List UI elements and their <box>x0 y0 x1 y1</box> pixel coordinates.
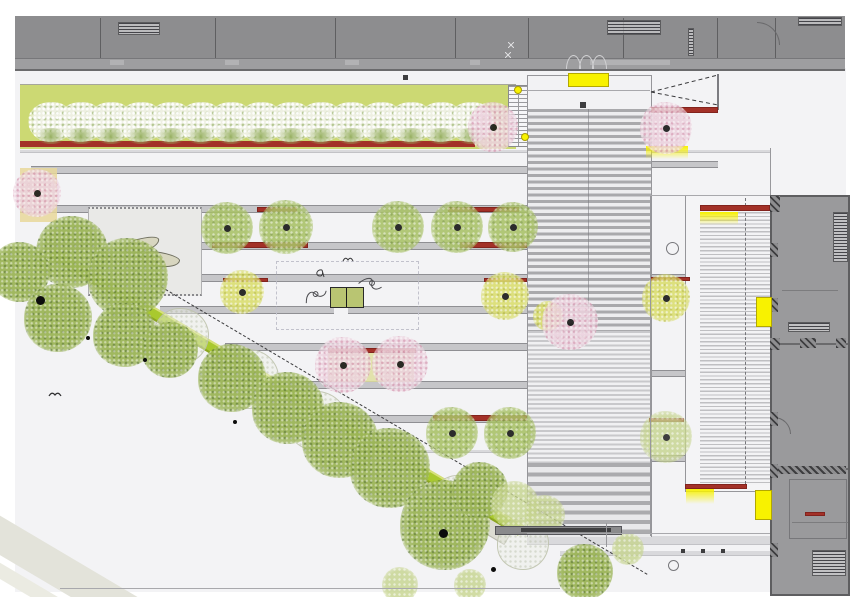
highlight-marker <box>686 489 714 504</box>
facade-divider <box>528 18 529 58</box>
stair-handrail-line <box>588 109 589 331</box>
tree-green <box>426 407 478 459</box>
building-sill <box>15 58 845 69</box>
tree-pink <box>315 337 371 393</box>
paving-band <box>527 536 770 545</box>
tree-light-green <box>454 569 486 597</box>
square-mark <box>403 75 408 80</box>
ramp-band <box>685 195 772 492</box>
tree-green <box>431 201 483 253</box>
tree-trunk <box>490 124 497 131</box>
tree-light-green <box>382 567 418 597</box>
tree-dense-green <box>24 284 92 352</box>
tree-green <box>488 202 538 252</box>
tree-trunk <box>663 295 670 302</box>
thin-line <box>60 588 560 589</box>
tree-trunk <box>510 224 517 231</box>
wall-pier <box>836 338 846 348</box>
tree-trunk-large <box>439 529 448 538</box>
wall-pier <box>770 464 778 478</box>
hatched-wall <box>774 466 846 474</box>
tree-trunk <box>224 225 231 232</box>
facade-notch <box>110 60 124 65</box>
wall-pier <box>800 338 816 348</box>
square-mark <box>681 549 685 553</box>
tree-trunk <box>283 224 290 231</box>
tree-trunk <box>395 224 402 231</box>
site-plan-canvas <box>0 0 854 597</box>
paving-band <box>650 161 718 168</box>
wall-pier <box>770 196 780 212</box>
cross-mark <box>508 42 514 48</box>
tree-yellow <box>481 272 529 320</box>
highlight-marker <box>756 297 772 327</box>
thin-line <box>527 533 770 534</box>
red-bench <box>700 205 770 211</box>
tree-trunk <box>449 430 456 437</box>
tree-trunk <box>86 336 90 340</box>
tree-trunk <box>34 190 41 197</box>
tree-green <box>259 200 313 254</box>
thin-line <box>650 195 770 196</box>
facade-notch <box>345 60 359 65</box>
facade-divider <box>215 18 216 58</box>
bird-mark-icon <box>342 255 354 264</box>
tree-pink <box>640 102 692 154</box>
yellow-marker <box>514 86 522 94</box>
annotation-text <box>833 212 848 262</box>
paving-band <box>20 150 527 153</box>
tree-trunk <box>340 362 347 369</box>
square-mark <box>701 549 705 553</box>
paving-band <box>650 370 685 377</box>
tree-trunk-large <box>36 296 45 305</box>
wall-pier <box>770 338 780 350</box>
tree-dense-green <box>557 544 613 597</box>
facade-divider <box>717 18 718 58</box>
facade-notch <box>225 60 239 65</box>
paving-band <box>31 166 527 174</box>
tree-green <box>372 201 424 253</box>
highlight-marker <box>568 73 609 87</box>
tree-light-green <box>640 411 692 463</box>
annotation-text <box>812 550 846 576</box>
highlight-marker <box>755 490 772 520</box>
label-a-sketch <box>314 268 326 278</box>
tree-trunk <box>454 224 461 231</box>
red-bench <box>805 512 825 516</box>
facade-divider <box>455 18 456 58</box>
annotation-text <box>607 20 661 35</box>
annotation-text <box>798 17 842 26</box>
tree-trunk <box>502 293 509 300</box>
ramp-treads <box>700 212 770 485</box>
interior-line <box>792 522 848 523</box>
tree-green <box>484 407 536 459</box>
tree-pink <box>542 294 598 350</box>
wall-pier <box>770 543 778 557</box>
tree-trunk <box>491 567 496 572</box>
wall-pier <box>770 412 778 426</box>
tree-trunk <box>143 358 147 362</box>
tree-trunk <box>663 125 670 132</box>
circle-mark <box>666 242 679 255</box>
tree-trunk <box>239 289 246 296</box>
facade-notch <box>470 60 480 65</box>
stair-flight-upper <box>528 109 651 331</box>
tree-trunk <box>397 361 404 368</box>
tree-green <box>201 202 253 254</box>
circle-mark <box>668 560 679 571</box>
facade-divider <box>100 18 101 58</box>
highlight-marker <box>700 212 738 225</box>
stair-flight-middle <box>528 331 651 463</box>
annotation-text <box>788 322 830 332</box>
thin-line <box>527 90 650 91</box>
tree-yellow <box>220 270 264 314</box>
tree-pink <box>372 336 428 392</box>
tree-pink <box>13 169 61 217</box>
red-bench <box>685 484 747 489</box>
interior-room <box>789 479 847 539</box>
square-mark <box>721 549 725 553</box>
tree-trunk <box>233 420 237 424</box>
square-mark <box>580 102 586 108</box>
tree-pink <box>468 102 518 152</box>
wall-pier <box>770 243 778 257</box>
thin-line <box>770 148 771 195</box>
thin-line <box>650 195 651 536</box>
tree-dense-green <box>142 322 198 378</box>
annotation-text <box>118 22 160 35</box>
tree-trunk <box>663 434 670 441</box>
cross-mark <box>505 52 511 58</box>
yellow-marker <box>521 133 529 141</box>
tree-trunk <box>507 430 514 437</box>
bird-mark-icon <box>48 390 62 400</box>
thin-line <box>606 523 607 547</box>
ramp-centerline <box>745 198 746 489</box>
tree-light-green <box>612 533 644 565</box>
annotation-text <box>688 28 694 56</box>
facade-divider <box>335 18 336 58</box>
tree-trunk <box>567 319 574 326</box>
interior-line <box>782 290 838 291</box>
